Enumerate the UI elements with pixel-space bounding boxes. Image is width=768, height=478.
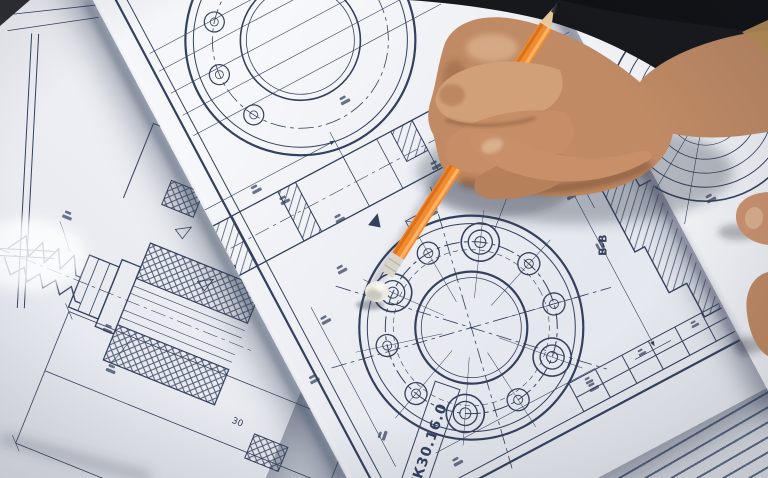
paper-edge-shadow [86, 2, 340, 478]
knuckle-highlight [466, 34, 518, 62]
drawing-overlay: 30 [0, 0, 768, 478]
index-fingertip-shade [439, 84, 465, 106]
stamp-text: ТК30.16.0 [407, 401, 451, 478]
photo-scene: 30 [0, 0, 768, 478]
hatched-block [245, 434, 288, 472]
second-hand-fingertips [718, 192, 768, 356]
bottom-left-soft-edge [0, 438, 150, 478]
eraser-highlight [375, 283, 385, 291]
dimension-label: 30 [230, 416, 245, 430]
paper-curl-highlight [0, 219, 86, 291]
